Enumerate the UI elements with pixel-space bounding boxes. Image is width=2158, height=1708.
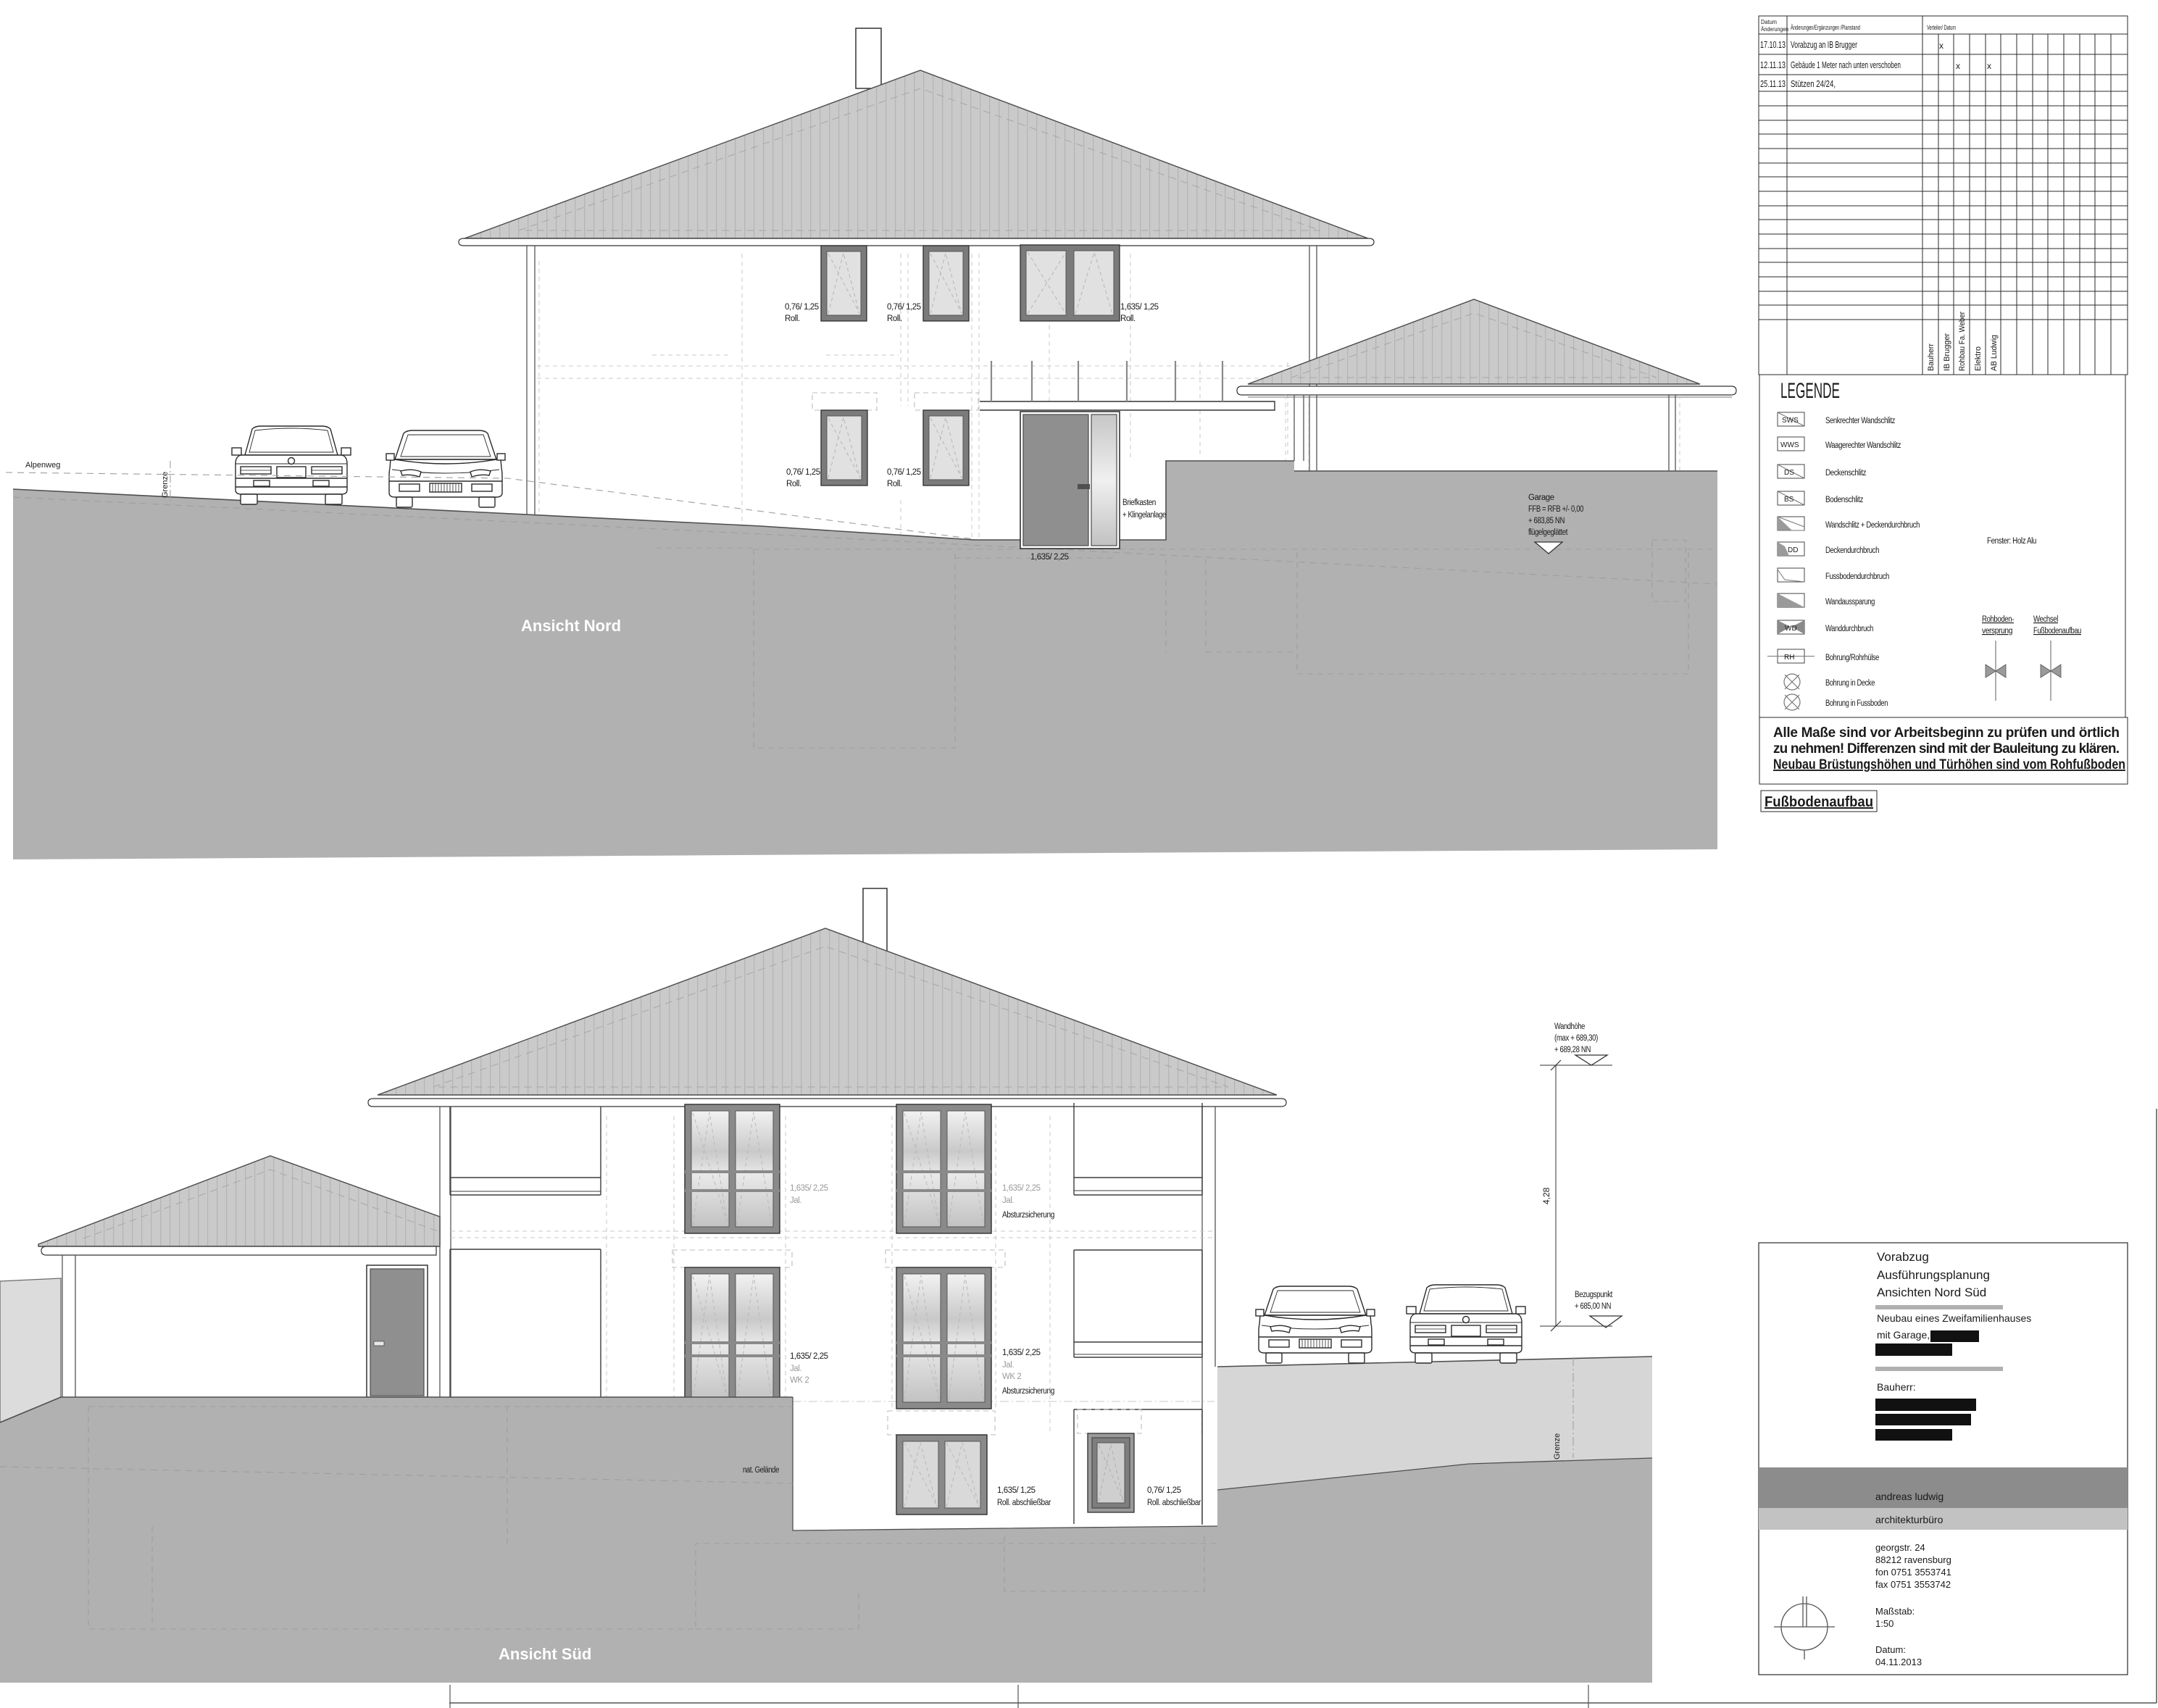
svg-text:Alle Maße sind vor Arbeitsbegi: Alle Maße sind vor Arbeitsbeginn zu prüf… (1773, 725, 2120, 741)
svg-text:Rohboden-: Rohboden- (1982, 615, 2015, 624)
svg-text:0,76/ 1,25: 0,76/ 1,25 (1147, 1486, 1181, 1495)
svg-text:WK 2: WK 2 (1002, 1372, 1021, 1381)
svg-text:12.11.13: 12.11.13 (1760, 59, 1786, 70)
svg-text:Wechsel: Wechsel (2033, 615, 2058, 624)
svg-text:0,76/ 1,25: 0,76/ 1,25 (786, 468, 820, 477)
svg-text:Bohrung in Fussboden: Bohrung in Fussboden (1825, 699, 1888, 708)
svg-text:Ansichten Nord Süd: Ansichten Nord Süd (1877, 1286, 1986, 1299)
svg-text:Briefkasten: Briefkasten (1122, 499, 1156, 507)
svg-text:0,76/ 1,25: 0,76/ 1,25 (887, 468, 921, 477)
svg-text:x: x (1956, 61, 1960, 71)
svg-text:Wandhöhe: Wandhöhe (1554, 1022, 1585, 1031)
svg-text:Ausführungsplanung: Ausführungsplanung (1877, 1268, 1990, 1282)
svg-text:Grenze: Grenze (1553, 1433, 1562, 1459)
svg-text:Wandschlitz + Deckendurchbruch: Wandschlitz + Deckendurchbruch (1825, 521, 1920, 530)
svg-text:1,635/ 1,25: 1,635/ 1,25 (997, 1486, 1036, 1495)
svg-text:Wandaussparung: Wandaussparung (1825, 598, 1875, 607)
svg-text:Wanddurchbruch: Wanddurchbruch (1825, 625, 1873, 633)
svg-text:Alpenweg: Alpenweg (25, 461, 60, 470)
svg-text:Bezugspunkt: Bezugspunkt (1575, 1291, 1613, 1299)
svg-text:4,28: 4,28 (1541, 1187, 1551, 1204)
svg-text:04.11.2013: 04.11.2013 (1875, 1657, 1922, 1667)
svg-text:Absturzsicherung: Absturzsicherung (1002, 1387, 1054, 1396)
svg-text:Roll. abschließbar: Roll. abschließbar (1147, 1499, 1201, 1507)
svg-text:WWS: WWS (1780, 441, 1799, 449)
svg-text:Roll. abschließbar: Roll. abschließbar (997, 1499, 1051, 1507)
svg-text:0,76/ 1,25: 0,76/ 1,25 (785, 303, 819, 312)
svg-text:BS: BS (1784, 496, 1794, 504)
svg-text:Gebäude 1 Meter nach unten ver: Gebäude 1 Meter nach unten verschoben (1791, 59, 1901, 70)
svg-text:Fußbodenaufbau: Fußbodenaufbau (2033, 627, 2081, 636)
svg-text:Roll.: Roll. (887, 314, 902, 323)
svg-text:Roll.: Roll. (887, 480, 902, 488)
svg-text:(max + 689,30): (max + 689,30) (1554, 1034, 1599, 1043)
svg-text:Verteiler/ Datum: Verteiler/ Datum (1927, 24, 1956, 31)
svg-text:Jal.: Jal. (790, 1365, 801, 1373)
svg-text:Bohrung in Decke: Bohrung in Decke (1825, 679, 1875, 688)
svg-text:17.10.13: 17.10.13 (1760, 39, 1786, 50)
svg-text:georgstr. 24: georgstr. 24 (1875, 1542, 1925, 1553)
svg-text:Roll.: Roll. (785, 314, 800, 323)
svg-text:flügelgeglättet: flügelgeglättet (1528, 528, 1568, 537)
svg-text:Rohbau Fa. Weber: Rohbau Fa. Weber (1958, 312, 1967, 371)
svg-text:FFB = RFB +/- 0,00: FFB = RFB +/- 0,00 (1528, 505, 1583, 514)
svg-text:andreas ludwig: andreas ludwig (1875, 1491, 1944, 1502)
svg-text:Stützen 24/24,: Stützen 24/24, (1791, 78, 1836, 89)
svg-text:Änderungen: Änderungen (1761, 26, 1788, 33)
svg-text:mit Garage,: mit Garage, (1877, 1329, 1930, 1341)
svg-text:88212 ravensburg: 88212 ravensburg (1875, 1554, 1951, 1565)
svg-text:Senkrechter Wandschlitz: Senkrechter Wandschlitz (1825, 417, 1896, 425)
svg-text:Bohrung/Rohrhülse: Bohrung/Rohrhülse (1825, 654, 1879, 662)
svg-text:Elektro: Elektro (1974, 346, 1983, 371)
svg-text:1,635/ 2,25: 1,635/ 2,25 (790, 1184, 828, 1193)
svg-text:nat. Gelände: nat. Gelände (743, 1466, 779, 1475)
svg-text:+ 683,85 NN: + 683,85 NN (1528, 517, 1565, 525)
svg-text:Maßstab:: Maßstab: (1875, 1606, 1915, 1617)
svg-text:x: x (1987, 61, 1991, 71)
svg-text:1:50: 1:50 (1875, 1618, 1894, 1629)
svg-text:WD: WD (1785, 625, 1797, 633)
svg-text:versprung: versprung (1982, 627, 2012, 636)
svg-text:1,635/ 2,25: 1,635/ 2,25 (1002, 1349, 1041, 1357)
svg-text:DD: DD (1788, 546, 1798, 554)
svg-text:Bauherr:: Bauherr: (1877, 1381, 1916, 1393)
svg-text:Deckenschlitz: Deckenschlitz (1825, 469, 1867, 478)
svg-text:Roll.: Roll. (786, 480, 801, 488)
svg-text:Neubau Brüstungshöhen und Türh: Neubau Brüstungshöhen und Türhöhen sind … (1773, 757, 2125, 772)
svg-text:zu nehmen! Differenzen sind mi: zu nehmen! Differenzen sind mit der Baul… (1773, 741, 2120, 757)
svg-text:Bauherr: Bauherr (1927, 343, 1936, 371)
svg-text:1,635/ 2,25: 1,635/ 2,25 (790, 1352, 828, 1361)
svg-text:+ 689,28 NN: + 689,28 NN (1554, 1046, 1591, 1054)
svg-text:Vorabzug: Vorabzug (1877, 1250, 1929, 1264)
svg-text:1,635/ 1,25: 1,635/ 1,25 (1120, 303, 1159, 312)
svg-text:Vorabzug an IB Brugger: Vorabzug an IB Brugger (1791, 39, 1857, 50)
svg-text:Datum: Datum (1761, 19, 1777, 25)
svg-text:Bodenschlitz: Bodenschlitz (1825, 496, 1864, 504)
svg-text:Grenze: Grenze (161, 472, 170, 498)
svg-text:Ansicht Nord: Ansicht Nord (521, 617, 621, 635)
svg-text:fon 0751 3553741: fon 0751 3553741 (1875, 1567, 1951, 1578)
svg-text:RH: RH (1784, 654, 1794, 662)
svg-text:IB Brugger: IB Brugger (1943, 333, 1951, 371)
svg-text:25.11.13: 25.11.13 (1760, 78, 1786, 89)
svg-text:0,76/ 1,25: 0,76/ 1,25 (887, 303, 921, 312)
svg-text:1,635/ 2,25: 1,635/ 2,25 (1030, 553, 1069, 562)
svg-text:+ Klingelanlage: + Klingelanlage (1122, 511, 1166, 520)
svg-text:1,635/ 2,25: 1,635/ 2,25 (1002, 1184, 1041, 1193)
svg-text:Fussbodendurchbruch: Fussbodendurchbruch (1825, 572, 1889, 581)
svg-text:fax 0751 3553742: fax 0751 3553742 (1875, 1579, 1951, 1590)
svg-text:DS: DS (1784, 469, 1794, 477)
svg-text:Garage: Garage (1528, 493, 1554, 502)
svg-text:Fenster: Holz Alu: Fenster: Holz Alu (1987, 537, 2036, 546)
svg-text:SWS: SWS (1782, 417, 1799, 425)
svg-text:Ansicht Süd: Ansicht Süd (499, 1645, 591, 1663)
svg-text:Fußbodenaufbau: Fußbodenaufbau (1765, 794, 1873, 810)
svg-text:Datum:: Datum: (1875, 1644, 1906, 1655)
svg-text:Roll.: Roll. (1120, 314, 1136, 323)
svg-text:LEGENDE: LEGENDE (1780, 379, 1840, 403)
svg-text:WK 2: WK 2 (790, 1376, 809, 1385)
svg-text:Waagerechter Wandschlitz: Waagerechter Wandschlitz (1825, 441, 1901, 450)
svg-text:Deckendurchbruch: Deckendurchbruch (1825, 546, 1879, 555)
svg-text:architekturbüro: architekturbüro (1875, 1514, 1944, 1525)
svg-text:x: x (1939, 41, 1944, 51)
svg-text:Neubau eines Zweifamilienhause: Neubau eines Zweifamilienhauses (1877, 1312, 2031, 1324)
svg-text:Änderungen/Ergänzungen /Planst: Änderungen/Ergänzungen /Planstand (1791, 24, 1860, 31)
svg-text:+ 685,00 NN: + 685,00 NN (1575, 1302, 1611, 1311)
svg-text:AB Ludwig: AB Ludwig (1990, 335, 1999, 371)
svg-text:Jal.: Jal. (790, 1196, 801, 1205)
svg-text:Jal.: Jal. (1002, 1361, 1014, 1370)
svg-text:Absturzsicherung: Absturzsicherung (1002, 1211, 1054, 1220)
svg-text:Jal.: Jal. (1002, 1196, 1014, 1205)
